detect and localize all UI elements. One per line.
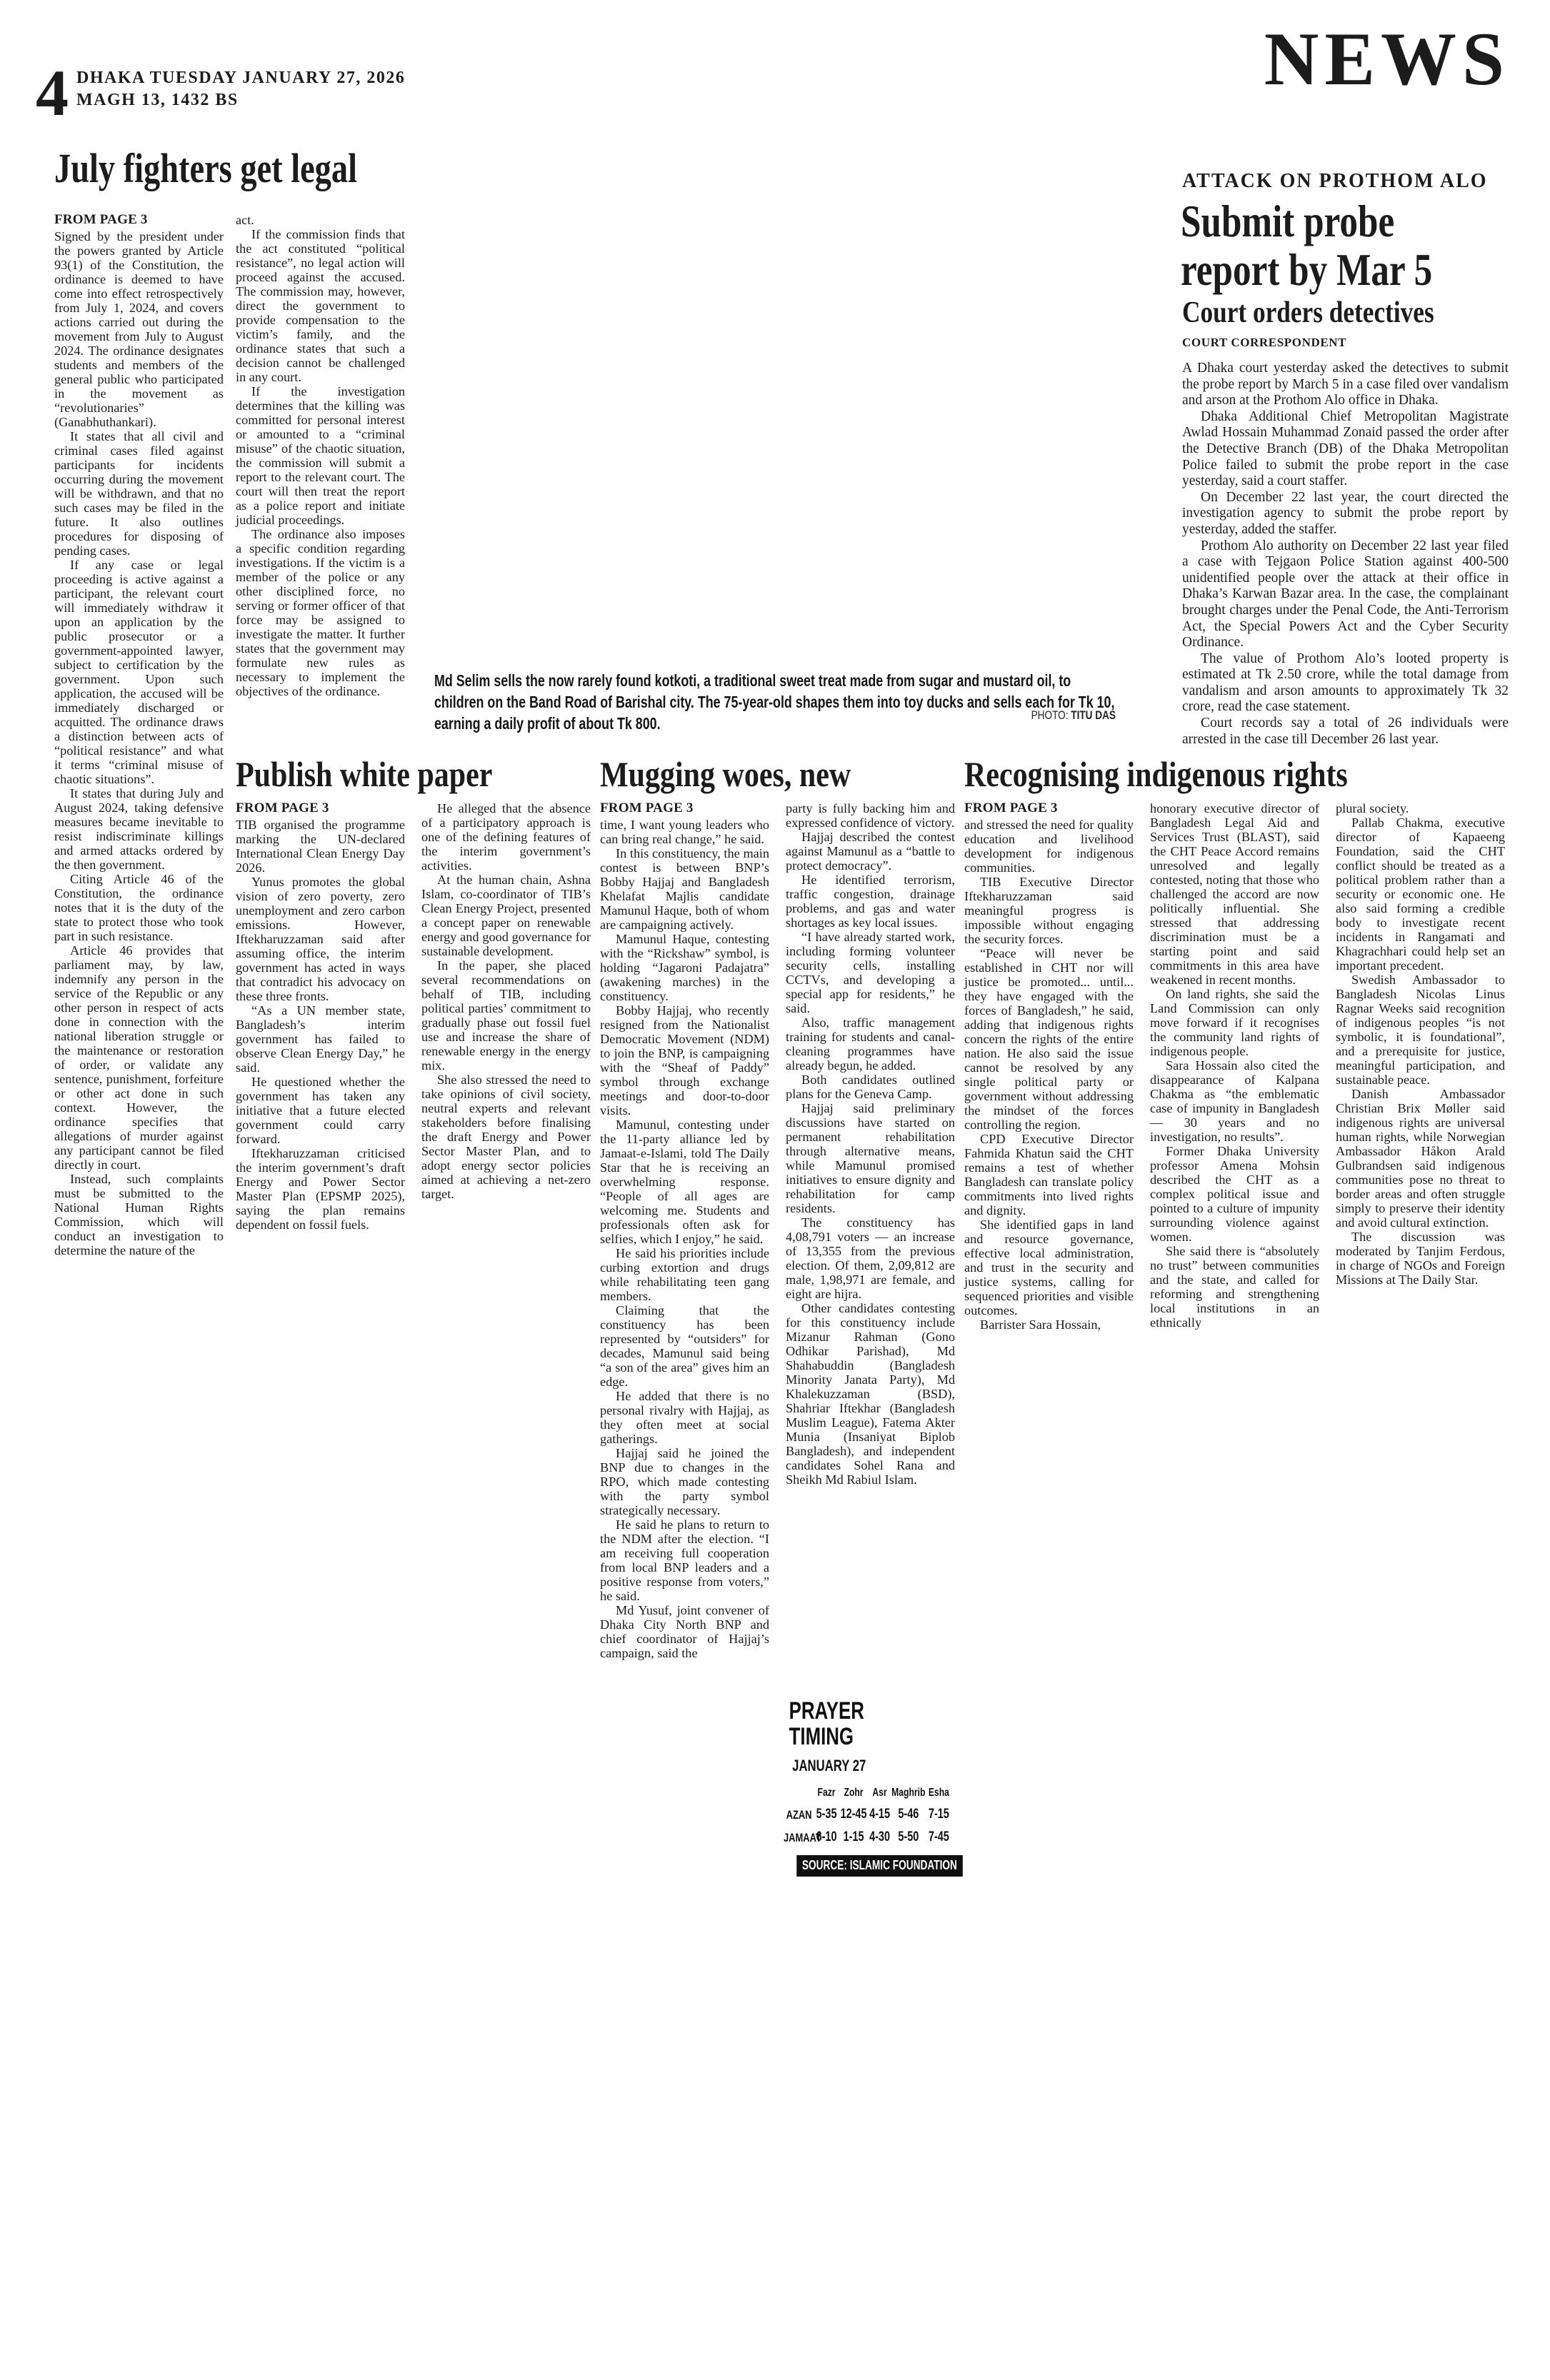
- photo-credit: PHOTO: TITU DAS: [943, 708, 1116, 723]
- indigenous-column-1: FROM PAGE 3 and stressed the need for qu…: [964, 801, 1134, 1332]
- paragraph: He said his priorities include curbing e…: [600, 1246, 769, 1303]
- paragraph: At the human chain, Ashna Islam, co-coor…: [421, 873, 591, 958]
- subhead-court-orders: Court orders detectives: [1182, 296, 1434, 330]
- headline-indigenous-rights: Recognising indigenous rights: [964, 755, 1348, 793]
- paragraph: Danish Ambassador Christian Brix Møller …: [1336, 1087, 1505, 1230]
- byline-court-correspondent: COURT CORRESPONDENT: [1182, 336, 1346, 350]
- paragraph: Mamunul Haque, contesting with the “Rick…: [600, 932, 769, 1003]
- paragraph: In this constituency, the main contest i…: [600, 846, 769, 932]
- probe-article-body: A Dhaka court yesterday asked the detect…: [1182, 361, 1509, 748]
- paragraph: He said he plans to return to the NDM af…: [600, 1517, 769, 1603]
- paragraph: If the investigation determines that the…: [236, 384, 405, 527]
- paragraph: Signed by the president under the powers…: [54, 229, 224, 429]
- paragraph: Iftekharuzzaman criticised the interim g…: [236, 1146, 405, 1232]
- prayer-cell: 5-50: [891, 1829, 926, 1845]
- paragraph: honorary executive director of Banglades…: [1150, 801, 1319, 987]
- paragraph: Mamunul, contesting under the 11-party a…: [600, 1118, 769, 1246]
- july-column-2: act.If the commission finds that the act…: [236, 213, 405, 698]
- paragraph: She also stressed the need to take opini…: [421, 1073, 591, 1201]
- kicker-attack-on-prothom-alo: ATTACK ON PROTHOM ALO: [1182, 170, 1488, 193]
- prayer-date: JANUARY 27: [792, 1757, 951, 1775]
- paragraph: It states that during July and August 20…: [54, 786, 224, 872]
- prayer-table: Fazr Zohr Asr Maghrib Esha AZAN 5-35 12-…: [784, 1787, 952, 1845]
- paragraph: Also, traffic management training for st…: [786, 1015, 955, 1073]
- prayer-source: SOURCE: ISLAMIC FOUNDATION: [796, 1855, 962, 1877]
- paragraph: He identified terrorism, traffic congest…: [786, 873, 955, 930]
- prayer-cell: 1-15: [839, 1829, 869, 1845]
- text-column: party is fully backing him and expressed…: [786, 801, 955, 1487]
- prayer-header-maghrib: Maghrib: [891, 1787, 926, 1799]
- paragraph: The discussion was moderated by Tanjim F…: [1336, 1230, 1505, 1287]
- newspaper-page: 4 DHAKA TUESDAY JANUARY 27, 2026 MAGH 13…: [0, 0, 1550, 2380]
- paragraph: Prothom Alo authority on December 22 las…: [1182, 538, 1509, 651]
- paragraph: “Peace will never be established in CHT …: [964, 946, 1134, 1132]
- paragraph: Md Yusuf, joint convener of Dhaka City N…: [600, 1603, 769, 1660]
- july-column-1: FROM PAGE 3 Signed by the president unde…: [54, 213, 224, 1257]
- text-column: honorary executive director of Banglades…: [1150, 801, 1319, 1330]
- text-column: TIB organised the programme marking the …: [236, 818, 405, 1232]
- paragraph: A Dhaka court yesterday asked the detect…: [1182, 361, 1509, 409]
- paragraph: Swedish Ambassador to Bangladesh Nicolas…: [1336, 973, 1505, 1087]
- prayer-cell: 12-45: [839, 1807, 869, 1822]
- paragraph: “I have already started work, including …: [786, 930, 955, 1015]
- from-page-label: FROM PAGE 3: [600, 801, 769, 815]
- prayer-cell: 4-30: [869, 1829, 891, 1845]
- indigenous-column-2: honorary executive director of Banglades…: [1150, 801, 1319, 1330]
- headline-line-1: Submit probe: [1181, 197, 1432, 246]
- prayer-cell: 7-15: [926, 1807, 951, 1822]
- text-column: plural society.Pallab Chakma, executive …: [1336, 801, 1505, 1287]
- paragraph: Court records say a total of 26 individu…: [1182, 715, 1509, 748]
- prayer-cell: 5-35: [814, 1807, 839, 1822]
- paragraph: and stressed the need for quality educat…: [964, 818, 1134, 875]
- prayer-title-line2: TIMING: [789, 1724, 952, 1749]
- prayer-cell: 5-46: [891, 1807, 926, 1822]
- dateline: DHAKA TUESDAY JANUARY 27, 2026 MAGH 13, …: [76, 67, 405, 111]
- white-paper-column-1: FROM PAGE 3 TIB organised the programme …: [236, 801, 405, 1232]
- page-number: 4: [36, 60, 69, 126]
- paragraph: He questioned whether the government has…: [236, 1075, 405, 1146]
- paragraph: TIB organised the programme marking the …: [236, 818, 405, 875]
- paragraph: Bobby Hajjaj, who recently resigned from…: [600, 1003, 769, 1118]
- paragraph: Former Dhaka University professor Amena …: [1150, 1144, 1319, 1244]
- headline-july-fighters: July fighters get legal: [54, 147, 357, 190]
- headline-mugging-woes: Mugging woes, new: [600, 755, 851, 793]
- text-column: and stressed the need for quality educat…: [964, 818, 1134, 1332]
- mugging-column-2: party is fully backing him and expressed…: [786, 801, 955, 1487]
- white-paper-column-2: He alleged that the absence of a partici…: [421, 801, 591, 1201]
- prayer-row-label-azan: AZAN: [784, 1808, 814, 1822]
- text-column: act.If the commission finds that the act…: [236, 213, 405, 698]
- paragraph: Instead, such complaints must be submitt…: [54, 1172, 224, 1257]
- text-column: time, I want young leaders who can bring…: [600, 818, 769, 1660]
- headline-submit-probe: Submit probe report by Mar 5: [1181, 197, 1432, 294]
- paragraph: It states that all civil and criminal ca…: [54, 429, 224, 558]
- headline-publish-white-paper: Publish white paper: [236, 755, 492, 793]
- prayer-row-label-jamaat: JAMAAT: [784, 1831, 814, 1845]
- mugging-column-1: FROM PAGE 3 time, I want young leaders w…: [600, 801, 769, 1660]
- paragraph: CPD Executive Director Fahmida Khatun sa…: [964, 1132, 1134, 1217]
- paragraph: The value of Prothom Alo’s looted proper…: [1182, 651, 1509, 715]
- paragraph: Sara Hossain also cited the disappearanc…: [1150, 1058, 1319, 1144]
- paragraph: Hajjaj said he joined the BNP due to cha…: [600, 1446, 769, 1517]
- paragraph: She identified gaps in land and resource…: [964, 1217, 1134, 1317]
- paragraph: If any case or legal proceeding is activ…: [54, 558, 224, 786]
- paragraph: On December 22 last year, the court dire…: [1182, 490, 1509, 538]
- headline-line-2: report by Mar 5: [1181, 246, 1432, 294]
- paragraph: plural society.: [1336, 801, 1505, 815]
- paragraph: Claiming that the constituency has been …: [600, 1303, 769, 1389]
- paragraph: Citing Article 46 of the Constitution, t…: [54, 872, 224, 943]
- from-page-label: FROM PAGE 3: [236, 801, 405, 815]
- paragraph: If the commission finds that the act con…: [236, 227, 405, 384]
- paragraph: In the paper, she placed several recomme…: [421, 958, 591, 1073]
- prayer-cell: 7-45: [926, 1829, 951, 1845]
- prayer-title-line1: PRAYER: [789, 1698, 952, 1724]
- prayer-cell: 4-15: [869, 1807, 891, 1822]
- photo-caption: Md Selim sells the now rarely found kotk…: [434, 670, 1121, 734]
- prayer-timing-box: PRAYER TIMING JANUARY 27 Fazr Zohr Asr M…: [784, 1698, 952, 1877]
- prayer-header-asr: Asr: [869, 1787, 891, 1799]
- photo-credit-label: PHOTO:: [1031, 708, 1069, 722]
- paragraph: TIB Executive Director Iftekharuzzaman s…: [964, 875, 1134, 946]
- paragraph: Article 46 provides that parliament may,…: [54, 943, 224, 1172]
- paragraph: “As a UN member state, Bangladesh’s inte…: [236, 1003, 405, 1075]
- paragraph: Other candidates contesting for this con…: [786, 1301, 955, 1487]
- dateline-line1: DHAKA TUESDAY JANUARY 27, 2026: [76, 67, 405, 89]
- paragraph: The ordinance also imposes a specific co…: [236, 527, 405, 698]
- text-column: He alleged that the absence of a partici…: [421, 801, 591, 1201]
- paragraph: party is fully backing him and expressed…: [786, 801, 955, 830]
- paragraph: Hajjaj said preliminary discussions have…: [786, 1101, 955, 1215]
- dateline-line2: MAGH 13, 1432 BS: [76, 89, 405, 111]
- paragraph: On land rights, she said the Land Commis…: [1150, 987, 1319, 1058]
- paragraph: Hajjaj described the contest against Mam…: [786, 830, 955, 873]
- paragraph: The constituency has 4,08,791 voters — a…: [786, 1215, 955, 1301]
- prayer-header-fazr: Fazr: [814, 1787, 839, 1799]
- paragraph: time, I want young leaders who can bring…: [600, 818, 769, 846]
- prayer-header-esha: Esha: [926, 1787, 951, 1799]
- paragraph: He alleged that the absence of a partici…: [421, 801, 591, 873]
- prayer-title: PRAYER TIMING: [789, 1698, 952, 1749]
- prayer-cell: 6-10: [814, 1829, 839, 1845]
- paragraph: Barrister Sara Hossain,: [964, 1317, 1134, 1332]
- paragraph: Pallab Chakma, executive director of Kap…: [1336, 815, 1505, 973]
- from-page-label: FROM PAGE 3: [964, 801, 1134, 815]
- paragraph: She said there is “absolutely no trust” …: [1150, 1244, 1319, 1330]
- from-page-label: FROM PAGE 3: [54, 213, 224, 227]
- prayer-header-zohr: Zohr: [839, 1787, 869, 1799]
- paragraph: Both candidates outlined plans for the G…: [786, 1073, 955, 1101]
- paragraph: Yunus promotes the global vision of zero…: [236, 875, 405, 1003]
- section-masthead: NEWS: [1264, 21, 1510, 97]
- photo-credit-name: TITU DAS: [1071, 708, 1116, 722]
- paragraph: He added that there is no personal rival…: [600, 1389, 769, 1446]
- text-column: Signed by the president under the powers…: [54, 229, 224, 1257]
- paragraph: Dhaka Additional Chief Metropolitan Magi…: [1182, 409, 1509, 490]
- indigenous-column-3: plural society.Pallab Chakma, executive …: [1336, 801, 1505, 1287]
- paragraph: act.: [236, 213, 405, 227]
